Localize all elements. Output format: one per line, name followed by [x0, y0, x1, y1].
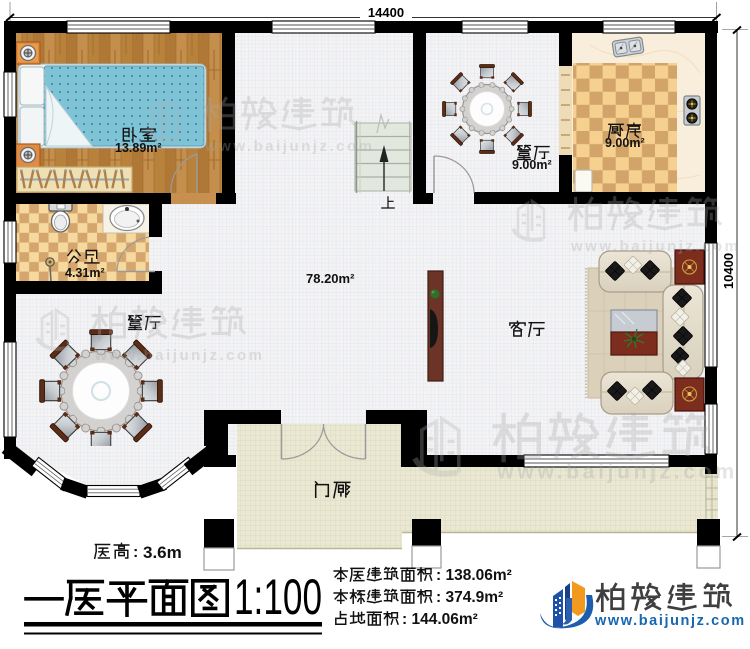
svg-text:1:100: 1:100 — [234, 569, 322, 625]
svg-text:13.89m²: 13.89m² — [115, 141, 162, 155]
svg-text:www.baijunjz.com: www.baijunjz.com — [94, 347, 264, 364]
svg-text:www.baijunjz.com: www.baijunjz.com — [570, 238, 740, 255]
svg-text:www.baijunjz.com: www.baijunjz.com — [204, 138, 374, 155]
svg-text:: 144.06m²: : 144.06m² — [402, 611, 478, 628]
svg-text::: : — [133, 544, 138, 561]
svg-text:9.00m²: 9.00m² — [605, 136, 645, 150]
svg-text:10400: 10400 — [721, 253, 736, 289]
svg-text:9.00m²: 9.00m² — [512, 158, 552, 172]
svg-text:78.20m²: 78.20m² — [306, 271, 355, 286]
svg-text:: 374.9m²: : 374.9m² — [436, 589, 503, 606]
svg-text:www.baijunjz.com: www.baijunjz.com — [594, 613, 746, 629]
svg-text:: 138.06m²: : 138.06m² — [436, 567, 512, 584]
svg-text:4.31m²: 4.31m² — [65, 266, 105, 280]
svg-text:14400: 14400 — [368, 5, 404, 20]
svg-text:3.6m: 3.6m — [143, 543, 182, 562]
svg-text:www.baijunjz.com: www.baijunjz.com — [496, 459, 738, 483]
